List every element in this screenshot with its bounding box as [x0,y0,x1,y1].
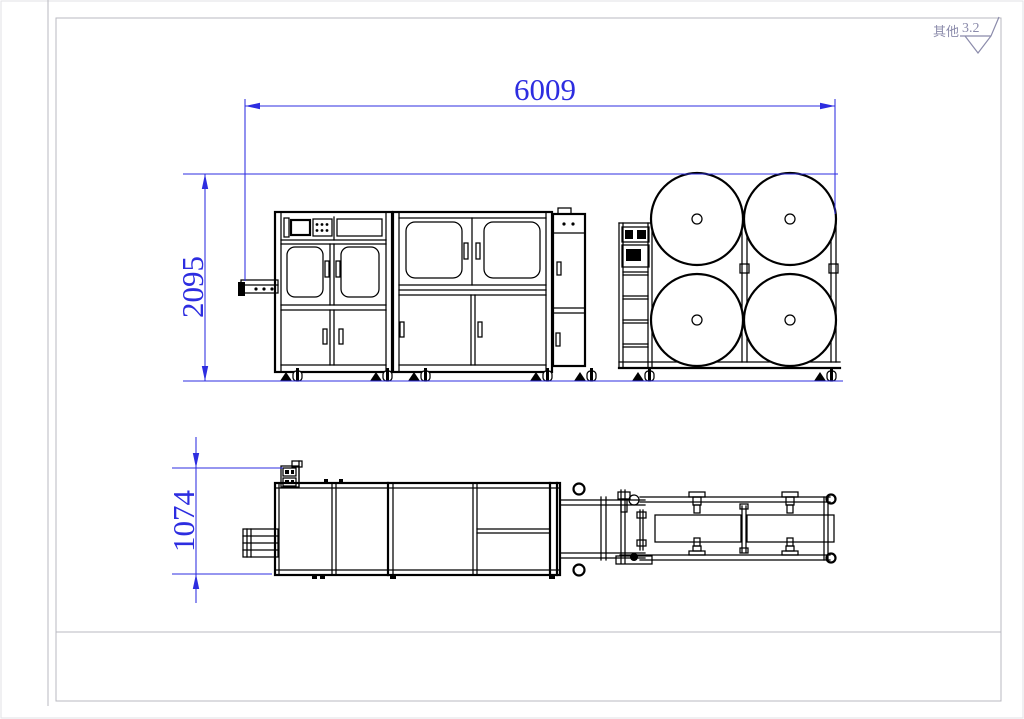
door-window [406,222,462,278]
door-handle [557,262,561,275]
button-panel [313,219,332,236]
door-handle [464,243,468,259]
dimension-text-height: 2095 [175,256,210,318]
shaft-clamp [689,538,705,555]
dimension-overall-depth: 1074 [166,437,283,603]
surface-roughness-note: 其他 3.2 [933,17,999,53]
door-handle [556,333,560,346]
sheet-frame [1,0,1023,718]
door-handle [400,322,404,337]
door-window [287,247,323,297]
center-cabinet [393,212,552,372]
plan-conveyor [243,529,278,557]
plan-roll-stand [616,490,836,564]
infeed-conveyor [238,280,278,296]
door-handle [478,322,482,337]
plan-transfer-rails [560,497,645,560]
material-roll [651,173,743,265]
material-roll [744,274,836,366]
front-view [238,173,840,381]
roughness-value: 3.2 [962,21,980,36]
drawing-sheet: 6009 2095 1074 其他 3.2 [0,0,1024,719]
material-roll [744,173,836,265]
roughness-prefix-label: 其他 [933,24,959,39]
door-handle [476,243,480,259]
hmi-screen [291,220,310,235]
roll-stand [619,173,840,368]
left-cabinet [275,212,392,372]
corner-post [574,565,585,576]
material-roll [651,274,743,366]
ladder-frame [619,223,652,368]
side-cabinet [553,208,585,366]
cad-drawing: 6009 2095 1074 其他 3.2 [0,0,1024,719]
door-handle [325,261,329,277]
door-window [484,222,540,278]
door-handle [323,329,327,344]
dimension-text-depth: 1074 [166,490,201,553]
dimension-text-length: 6009 [514,72,576,107]
door-window [341,247,379,297]
machine-feet [280,368,836,381]
door-handle [336,261,340,277]
plan-view [243,461,836,579]
door-handle [339,329,343,344]
shaft-clamp [782,538,798,555]
plan-body [275,479,585,579]
corner-post [574,484,585,495]
